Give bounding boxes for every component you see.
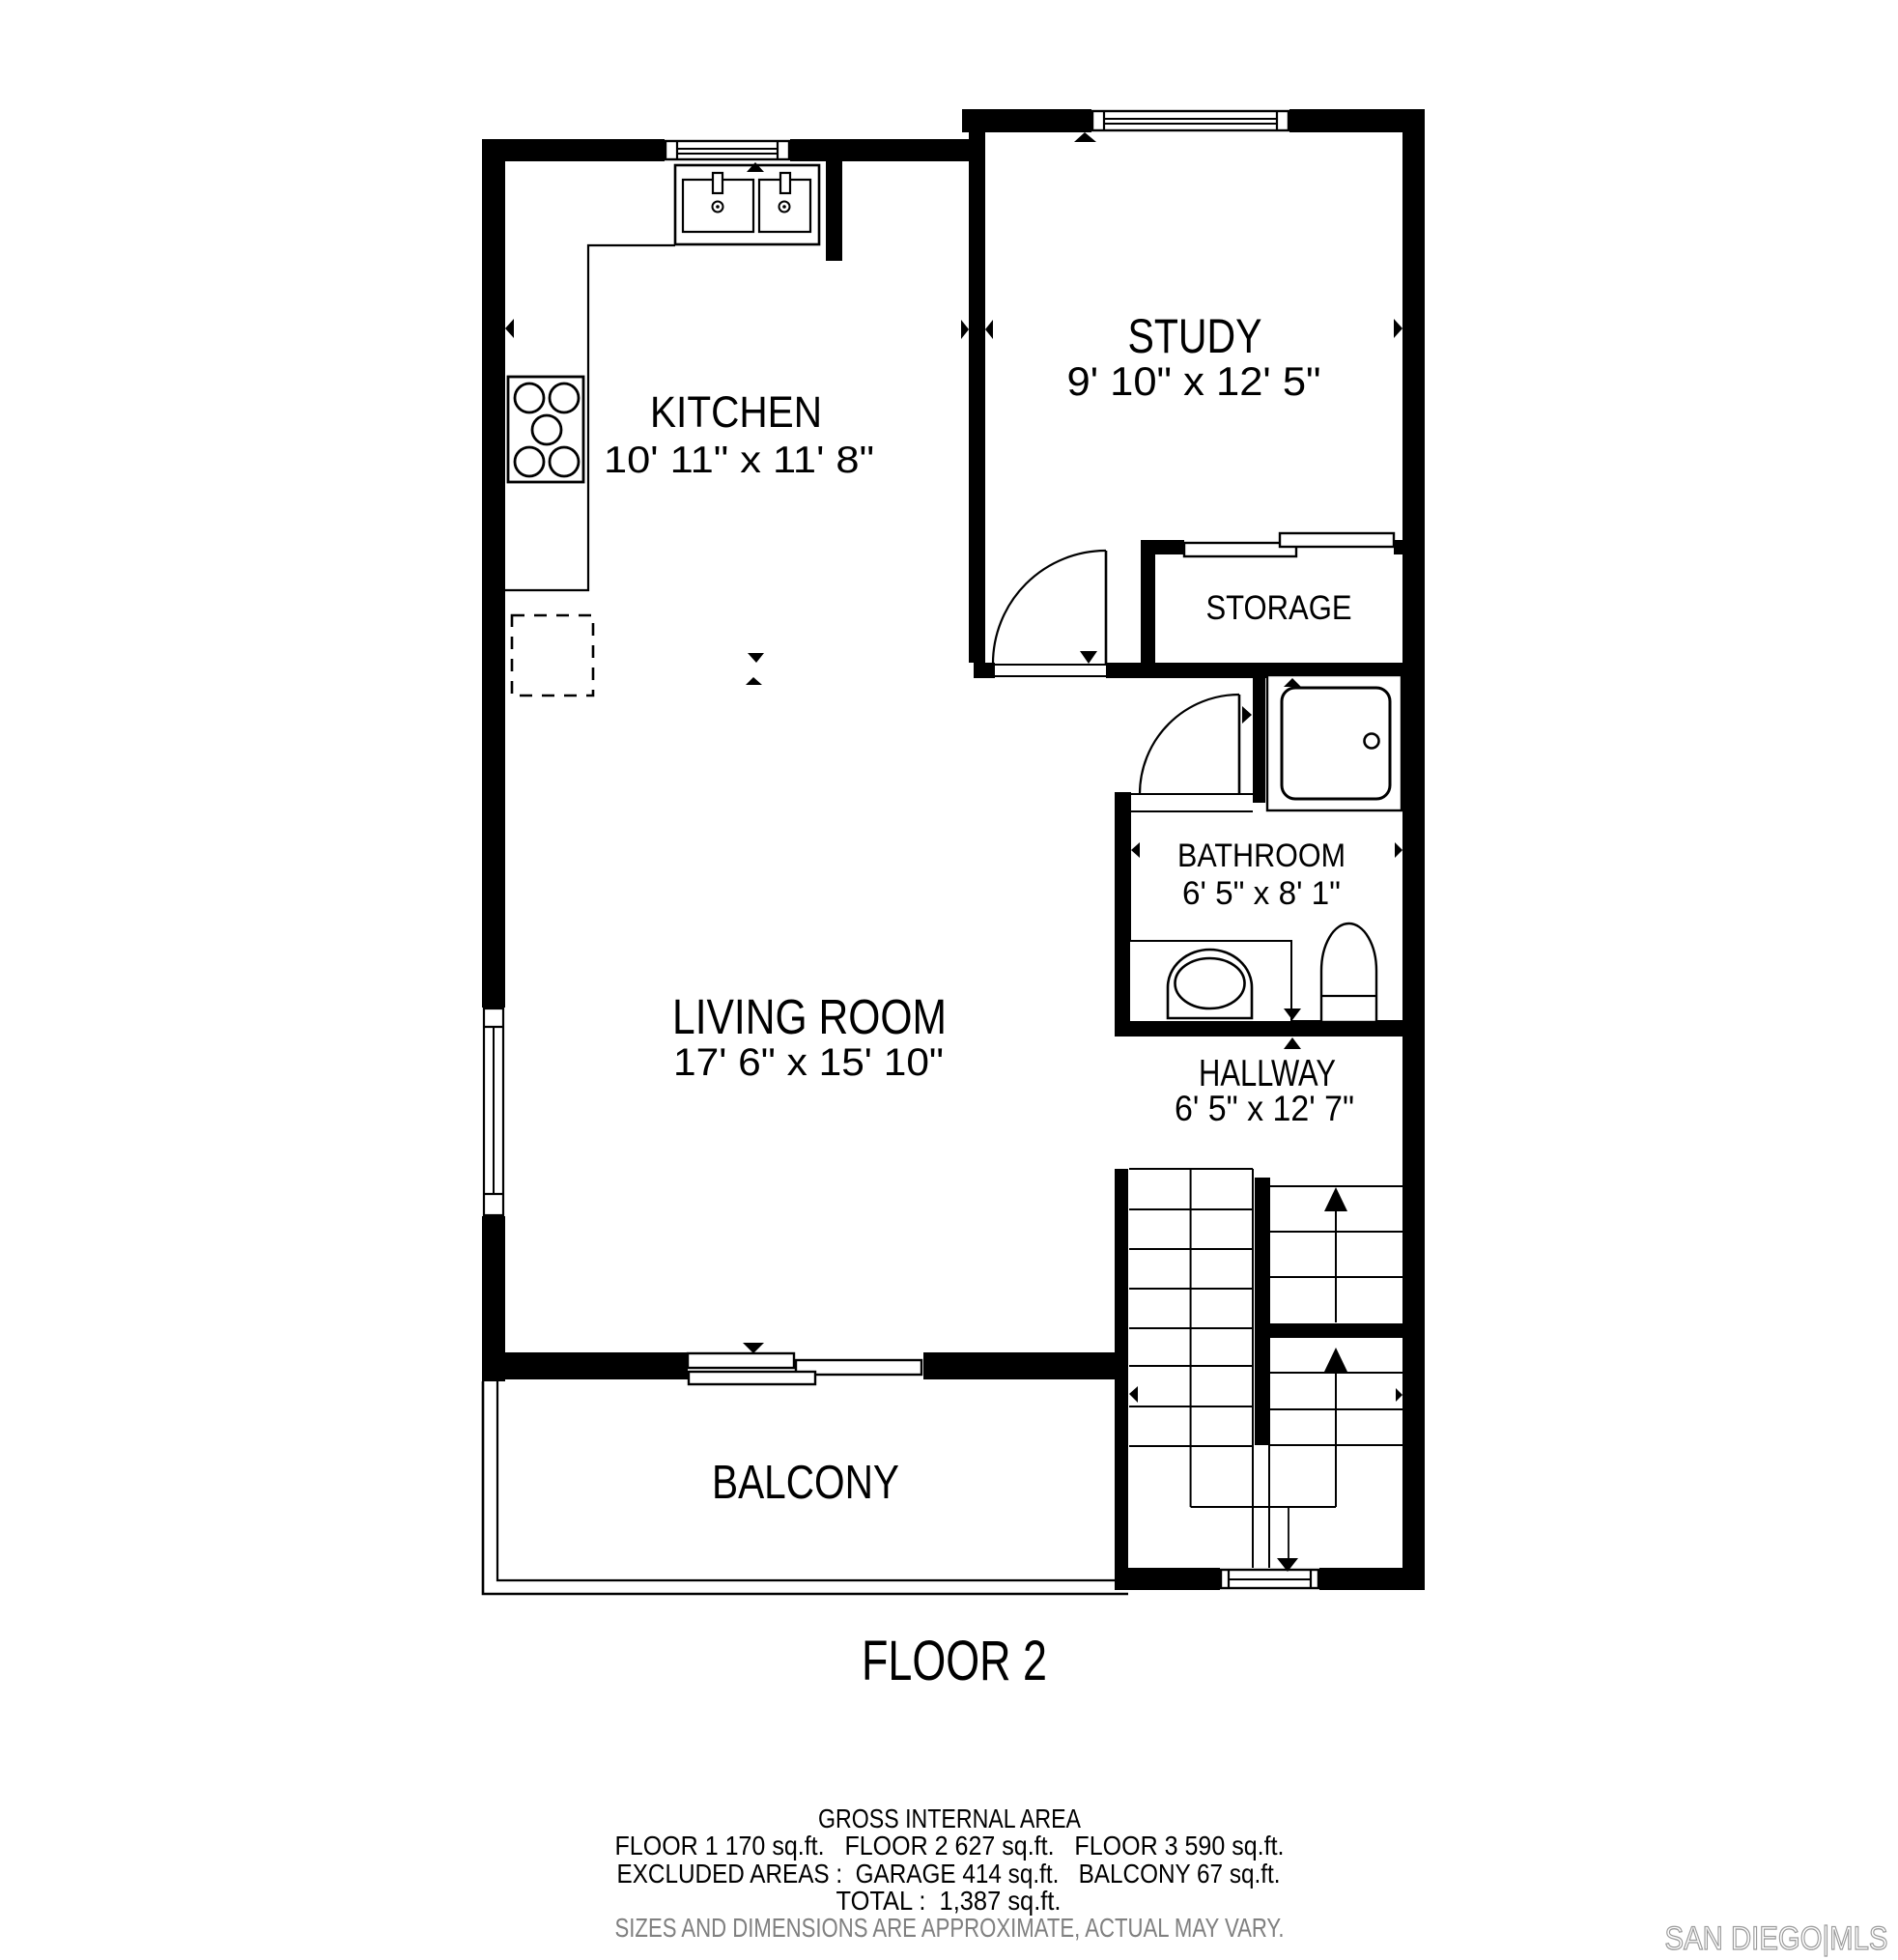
svg-text:6' 5" x 8' 1": 6' 5" x 8' 1": [1182, 875, 1341, 912]
svg-text:FLOOR 2: FLOOR 2: [862, 1630, 1047, 1692]
svg-text:TOTAL : 1,387 sq.ft.: TOTAL : 1,387 sq.ft.: [836, 1886, 1062, 1916]
svg-text:EXCLUDED AREAS : GARAGE 414 s: EXCLUDED AREAS : GARAGE 414 sq.ft. BALCO…: [617, 1859, 1281, 1889]
svg-text:LIVING ROOM: LIVING ROOM: [672, 989, 947, 1044]
svg-text:10' 11" x 11' 8": 10' 11" x 11' 8": [604, 440, 874, 481]
svg-text:GROSS INTERNAL AREA: GROSS INTERNAL AREA: [818, 1804, 1081, 1833]
svg-text:9' 10" x 12' 5": 9' 10" x 12' 5": [1067, 358, 1321, 404]
svg-text:SIZES AND DIMENSIONS ARE APPRO: SIZES AND DIMENSIONS ARE APPROXIMATE, AC…: [615, 1913, 1285, 1943]
svg-text:6' 5" x 12' 7": 6' 5" x 12' 7": [1175, 1089, 1354, 1128]
svg-text:STUDY: STUDY: [1128, 309, 1262, 363]
svg-text:STORAGE: STORAGE: [1206, 589, 1352, 627]
svg-text:FLOOR 1 170 sq.ft. FLOOR 2 6: FLOOR 1 170 sq.ft. FLOOR 2 627 sq.ft. FL…: [615, 1831, 1285, 1861]
svg-text:SAN DIEGO|MLS: SAN DIEGO|MLS: [1665, 1920, 1888, 1957]
svg-text:BALCONY: BALCONY: [712, 1457, 899, 1509]
svg-text:KITCHEN: KITCHEN: [650, 387, 822, 437]
svg-text:17' 6" x 15' 10": 17' 6" x 15' 10": [673, 1041, 944, 1084]
svg-text:BATHROOM: BATHROOM: [1177, 838, 1346, 874]
